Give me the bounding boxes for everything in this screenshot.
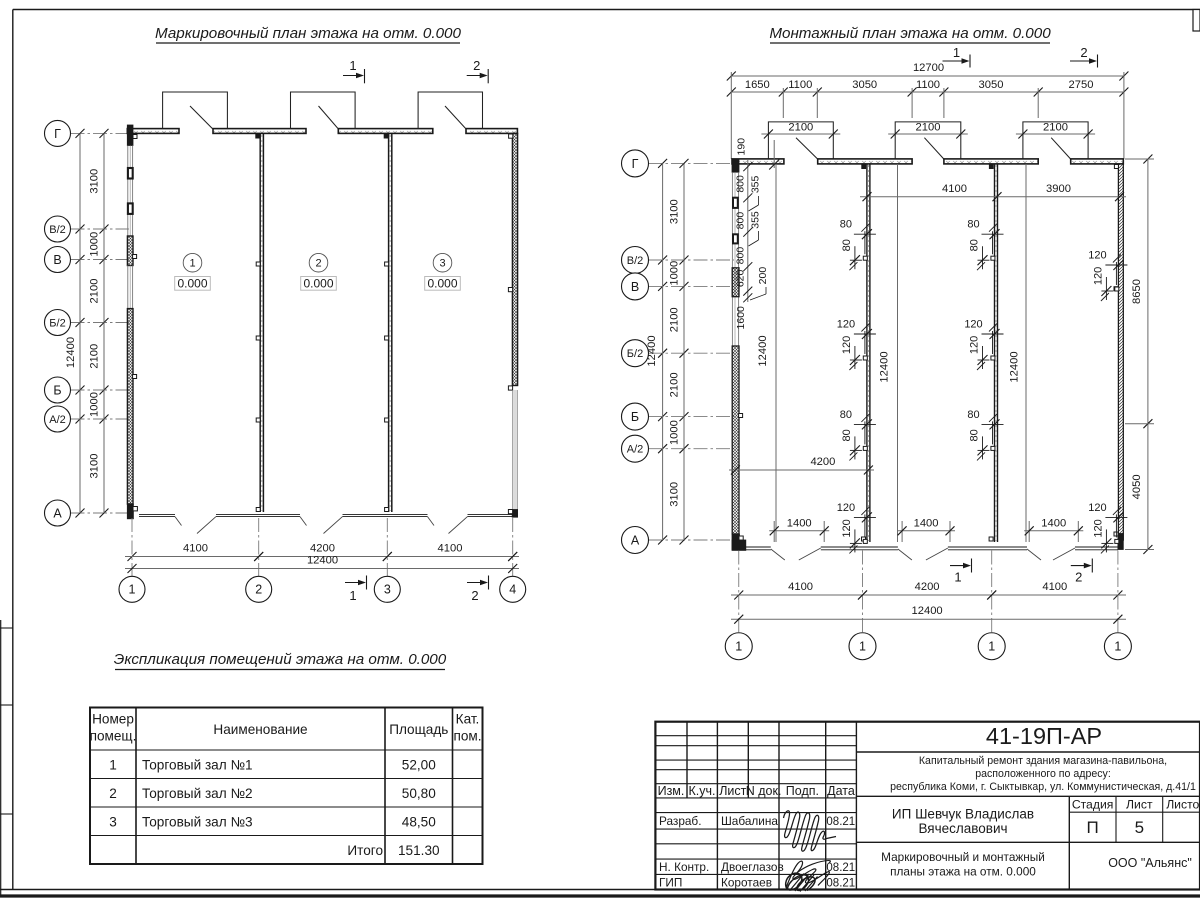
svg-text:120: 120 [841, 519, 853, 537]
svg-text:Маркировочный и монтажный: Маркировочный и монтажный [881, 850, 1045, 864]
svg-text:2100: 2100 [916, 122, 941, 134]
svg-text:120: 120 [837, 319, 855, 331]
svg-text:48,50: 48,50 [402, 815, 436, 830]
svg-text:355: 355 [750, 175, 762, 193]
svg-text:1400: 1400 [787, 518, 812, 530]
svg-text:Г: Г [632, 157, 639, 171]
svg-text:151.30: 151.30 [398, 843, 440, 858]
svg-text:0.000: 0.000 [177, 277, 207, 291]
svg-text:3: 3 [384, 583, 391, 597]
svg-text:3050: 3050 [852, 79, 877, 91]
svg-text:Б/2: Б/2 [627, 348, 643, 360]
svg-text:12700: 12700 [913, 62, 944, 74]
svg-text:4100: 4100 [438, 543, 463, 555]
svg-text:80: 80 [841, 429, 853, 441]
svg-text:Листов: Листов [1166, 798, 1200, 812]
svg-text:190: 190 [736, 138, 748, 156]
svg-text:2100: 2100 [89, 279, 101, 304]
svg-text:3100: 3100 [89, 454, 101, 479]
svg-text:3: 3 [109, 815, 117, 830]
svg-text:Двоеглазов: Двоеглазов [721, 860, 784, 874]
svg-text:2: 2 [1075, 570, 1082, 585]
svg-text:80: 80 [967, 219, 979, 231]
svg-text:08.21: 08.21 [826, 862, 855, 874]
svg-text:1400: 1400 [1041, 518, 1066, 530]
svg-text:Кат.: Кат. [456, 712, 480, 727]
svg-text:4100: 4100 [788, 581, 813, 593]
svg-text:2: 2 [471, 588, 478, 603]
svg-text:3900: 3900 [1046, 183, 1071, 195]
svg-text:80: 80 [840, 409, 852, 421]
svg-text:2: 2 [315, 258, 321, 270]
svg-text:Торговый зал №2: Торговый зал №2 [142, 786, 253, 801]
svg-text:1: 1 [109, 758, 117, 773]
svg-text:2: 2 [1080, 45, 1087, 60]
svg-text:620: 620 [734, 269, 746, 287]
svg-text:Лист: Лист [719, 784, 746, 798]
svg-text:120: 120 [837, 502, 855, 514]
svg-text:В/2: В/2 [627, 255, 644, 267]
svg-text:4: 4 [509, 583, 516, 597]
svg-text:Разраб.: Разраб. [659, 814, 701, 828]
svg-text:Изм.: Изм. [658, 784, 685, 798]
svg-text:В: В [53, 253, 61, 267]
svg-text:ГИП: ГИП [659, 876, 682, 890]
svg-text:1400: 1400 [914, 518, 939, 530]
svg-text:Наименование: Наименование [213, 722, 307, 737]
svg-text:планы этажа на отм. 0.000: планы этажа на отм. 0.000 [890, 865, 1036, 879]
svg-text:1: 1 [349, 58, 356, 73]
svg-text:3100: 3100 [89, 169, 101, 194]
svg-text:120: 120 [1088, 250, 1106, 262]
svg-text:2100: 2100 [669, 307, 681, 332]
svg-text:Б: Б [631, 410, 639, 424]
svg-text:1000: 1000 [669, 261, 681, 286]
svg-text:3100: 3100 [669, 482, 681, 507]
svg-text:Н. Контр.: Н. Контр. [659, 860, 709, 874]
svg-text:1600: 1600 [735, 306, 747, 330]
svg-text:2100: 2100 [669, 372, 681, 397]
svg-text:4200: 4200 [810, 456, 835, 468]
svg-text:1: 1 [988, 640, 995, 654]
svg-text:помещ.: помещ. [90, 729, 137, 744]
svg-text:Торговый зал №1: Торговый зал №1 [142, 758, 253, 773]
svg-text:12400: 12400 [1009, 351, 1021, 382]
svg-text:120: 120 [1088, 502, 1106, 514]
svg-text:1650: 1650 [745, 79, 770, 91]
svg-text:ООО "Альянс": ООО "Альянс" [1108, 856, 1192, 870]
svg-text:Подп.: Подп. [786, 784, 819, 798]
svg-text:1100: 1100 [788, 79, 812, 91]
svg-text:Маркировочный план этажа на от: Маркировочный план этажа на отм. 0.000 [155, 25, 461, 42]
svg-text:80: 80 [967, 409, 979, 421]
svg-text:Итого: Итого [347, 843, 383, 858]
svg-text:1000: 1000 [669, 420, 681, 445]
svg-text:200: 200 [757, 267, 769, 285]
svg-text:12400: 12400 [307, 555, 338, 567]
svg-text:8650: 8650 [1131, 279, 1143, 304]
svg-text:Г: Г [54, 127, 61, 141]
svg-text:5: 5 [1135, 818, 1144, 837]
svg-text:А: А [631, 533, 640, 547]
svg-text:ИП Шевчук Владислав: ИП Шевчук Владислав [892, 807, 1034, 822]
svg-text:12400: 12400 [646, 335, 658, 366]
svg-text:Б: Б [53, 383, 61, 397]
svg-text:120: 120 [964, 319, 982, 331]
svg-text:пом.: пом. [453, 729, 481, 744]
svg-text:52,00: 52,00 [402, 758, 436, 773]
svg-text:N док.: N док. [746, 784, 782, 798]
svg-text:1100: 1100 [916, 79, 940, 91]
svg-text:республика Коми, г. Сыктывкар,: республика Коми, г. Сыктывкар, ул. Комму… [890, 781, 1196, 793]
svg-text:1: 1 [735, 640, 742, 654]
svg-text:4200: 4200 [310, 543, 335, 555]
svg-text:80: 80 [969, 429, 981, 441]
svg-text:Коротаев: Коротаев [721, 876, 772, 890]
svg-text:2: 2 [109, 786, 117, 801]
svg-text:Экспликация помещений этажа на: Экспликация помещений этажа на отм. 0.00… [114, 651, 447, 668]
svg-text:3: 3 [439, 258, 445, 270]
svg-text:12400: 12400 [757, 335, 769, 366]
svg-text:08.21: 08.21 [826, 878, 855, 890]
svg-text:2: 2 [255, 583, 262, 597]
svg-text:Монтажный план этажа на отм. 0: Монтажный план этажа на отм. 0.000 [769, 25, 1051, 42]
svg-text:800: 800 [734, 247, 746, 265]
svg-text:12400: 12400 [65, 337, 77, 368]
svg-text:50,80: 50,80 [402, 786, 436, 801]
svg-text:1: 1 [954, 570, 961, 585]
svg-text:Дата: Дата [827, 784, 855, 798]
svg-text:1000: 1000 [89, 392, 101, 417]
svg-text:Торговый зал №3: Торговый зал №3 [142, 815, 253, 830]
svg-text:Вячеславович: Вячеславович [918, 821, 1007, 836]
svg-text:800: 800 [734, 175, 746, 193]
svg-text:А: А [53, 506, 62, 520]
svg-text:4100: 4100 [183, 543, 208, 555]
svg-text:3050: 3050 [979, 79, 1004, 91]
svg-text:4200: 4200 [915, 581, 940, 593]
svg-text:А/2: А/2 [627, 444, 644, 456]
svg-text:08.21: 08.21 [826, 816, 855, 828]
svg-text:12400: 12400 [879, 351, 891, 382]
svg-text:1000: 1000 [89, 232, 101, 257]
svg-text:Номер: Номер [92, 712, 134, 727]
svg-text:В/2: В/2 [49, 224, 66, 236]
svg-text:П: П [1086, 818, 1098, 837]
svg-text:355: 355 [750, 211, 762, 229]
svg-text:800: 800 [734, 212, 746, 230]
svg-text:1: 1 [1114, 640, 1121, 654]
svg-text:расположенного по адресу:: расположенного по адресу: [975, 768, 1111, 780]
svg-text:80: 80 [840, 219, 852, 231]
svg-text:Шабалина: Шабалина [721, 814, 778, 828]
svg-text:1: 1 [349, 588, 356, 603]
svg-text:1: 1 [129, 583, 136, 597]
svg-text:3100: 3100 [669, 199, 681, 224]
svg-text:1: 1 [953, 45, 960, 60]
svg-text:Лист: Лист [1126, 798, 1153, 812]
svg-text:К.уч.: К.уч. [689, 784, 716, 798]
svg-text:80: 80 [969, 239, 981, 251]
svg-text:Площадь: Площадь [389, 722, 448, 737]
svg-text:2750: 2750 [1069, 79, 1094, 91]
svg-text:12400: 12400 [912, 605, 943, 617]
svg-text:120: 120 [969, 336, 981, 354]
svg-text:2100: 2100 [89, 344, 101, 369]
svg-text:Стадия: Стадия [1072, 798, 1114, 812]
svg-text:120: 120 [1092, 267, 1104, 285]
svg-text:2100: 2100 [788, 122, 813, 134]
svg-text:Капитальный ремонт здания мага: Капитальный ремонт здания магазина-павил… [919, 755, 1167, 767]
svg-text:1: 1 [189, 258, 195, 270]
svg-text:120: 120 [841, 336, 853, 354]
svg-text:0.000: 0.000 [427, 277, 457, 291]
svg-text:120: 120 [1092, 519, 1104, 537]
svg-text:4100: 4100 [942, 183, 967, 195]
svg-text:41-19П-АР: 41-19П-АР [986, 723, 1102, 749]
svg-text:2100: 2100 [1043, 122, 1068, 134]
svg-text:4100: 4100 [1042, 581, 1067, 593]
svg-text:А/2: А/2 [49, 414, 66, 426]
svg-text:1: 1 [859, 640, 866, 654]
svg-text:80: 80 [841, 239, 853, 251]
svg-text:2: 2 [473, 58, 480, 73]
svg-text:4050: 4050 [1131, 474, 1143, 499]
svg-text:В: В [631, 280, 639, 294]
svg-text:Б/2: Б/2 [49, 317, 65, 329]
svg-text:0.000: 0.000 [303, 277, 333, 291]
